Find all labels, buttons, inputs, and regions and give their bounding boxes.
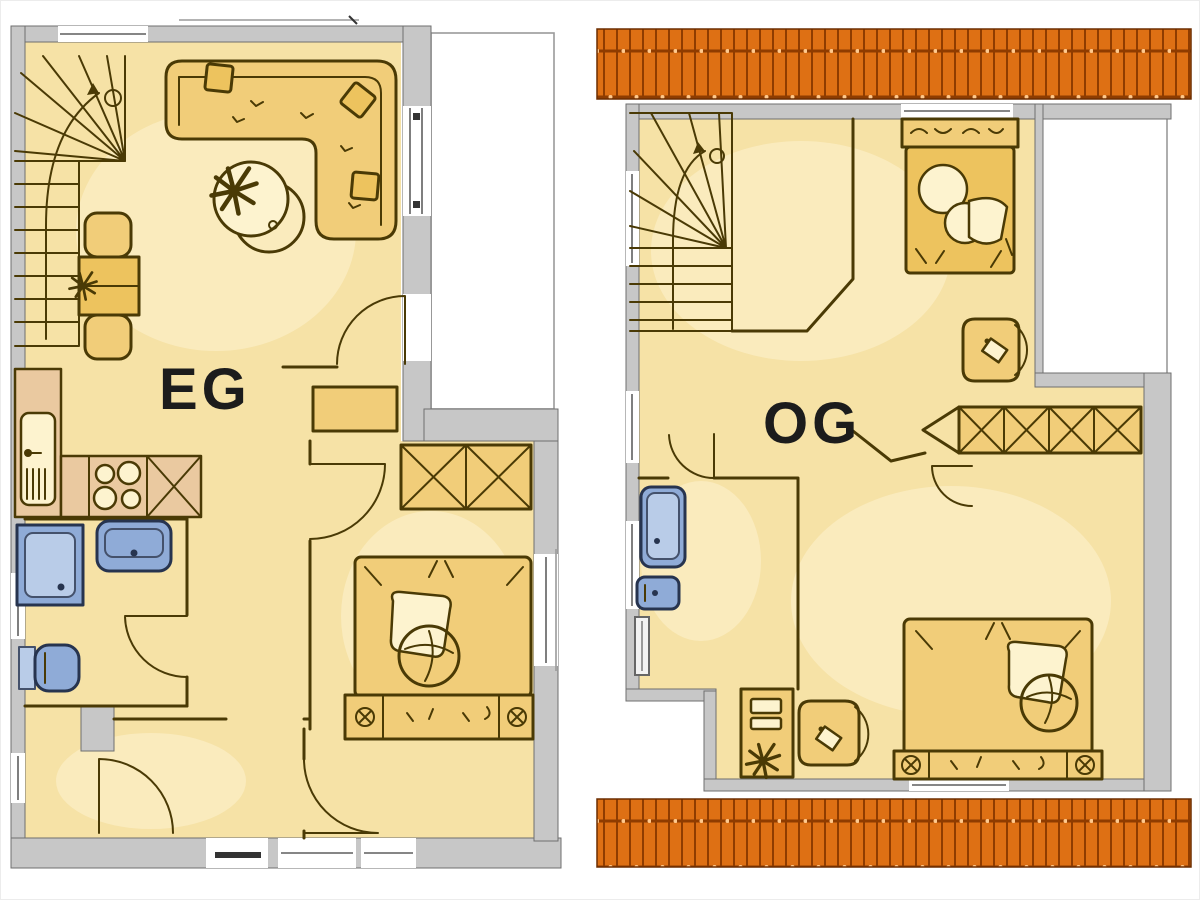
og-roof-bottom [597,799,1191,867]
floor-plan-image: EG [0,0,1200,900]
og-desk-area [741,689,868,778]
eg-sideboard [313,387,397,431]
eg-bed [345,557,533,739]
eg-label: EG [159,357,251,422]
eg-terrace-door-opening [403,294,431,361]
eg-floor-plan: EG [11,16,561,868]
eg-entrance-threshold [215,852,261,858]
og-bed-bottom [904,619,1092,755]
og-bed-bottom-headboard [894,751,1102,779]
og-armchair-bottom [799,701,868,765]
og-roof-top [597,29,1191,99]
toilet [35,645,79,691]
og-bed-top [902,119,1018,273]
og-bedroom-bottom [894,619,1102,779]
og-floor-plan: OG [597,29,1191,867]
toilet-tank [19,647,35,689]
og-label: OG [763,391,861,456]
og-armchair-top [963,319,1027,381]
eg-terrace [431,33,554,409]
floor-plans-svg: EG [1,1,1200,901]
og-bed-top-headboard [902,119,1018,147]
eg-wardrobe [401,445,531,509]
og-attic-notch [1043,106,1167,373]
